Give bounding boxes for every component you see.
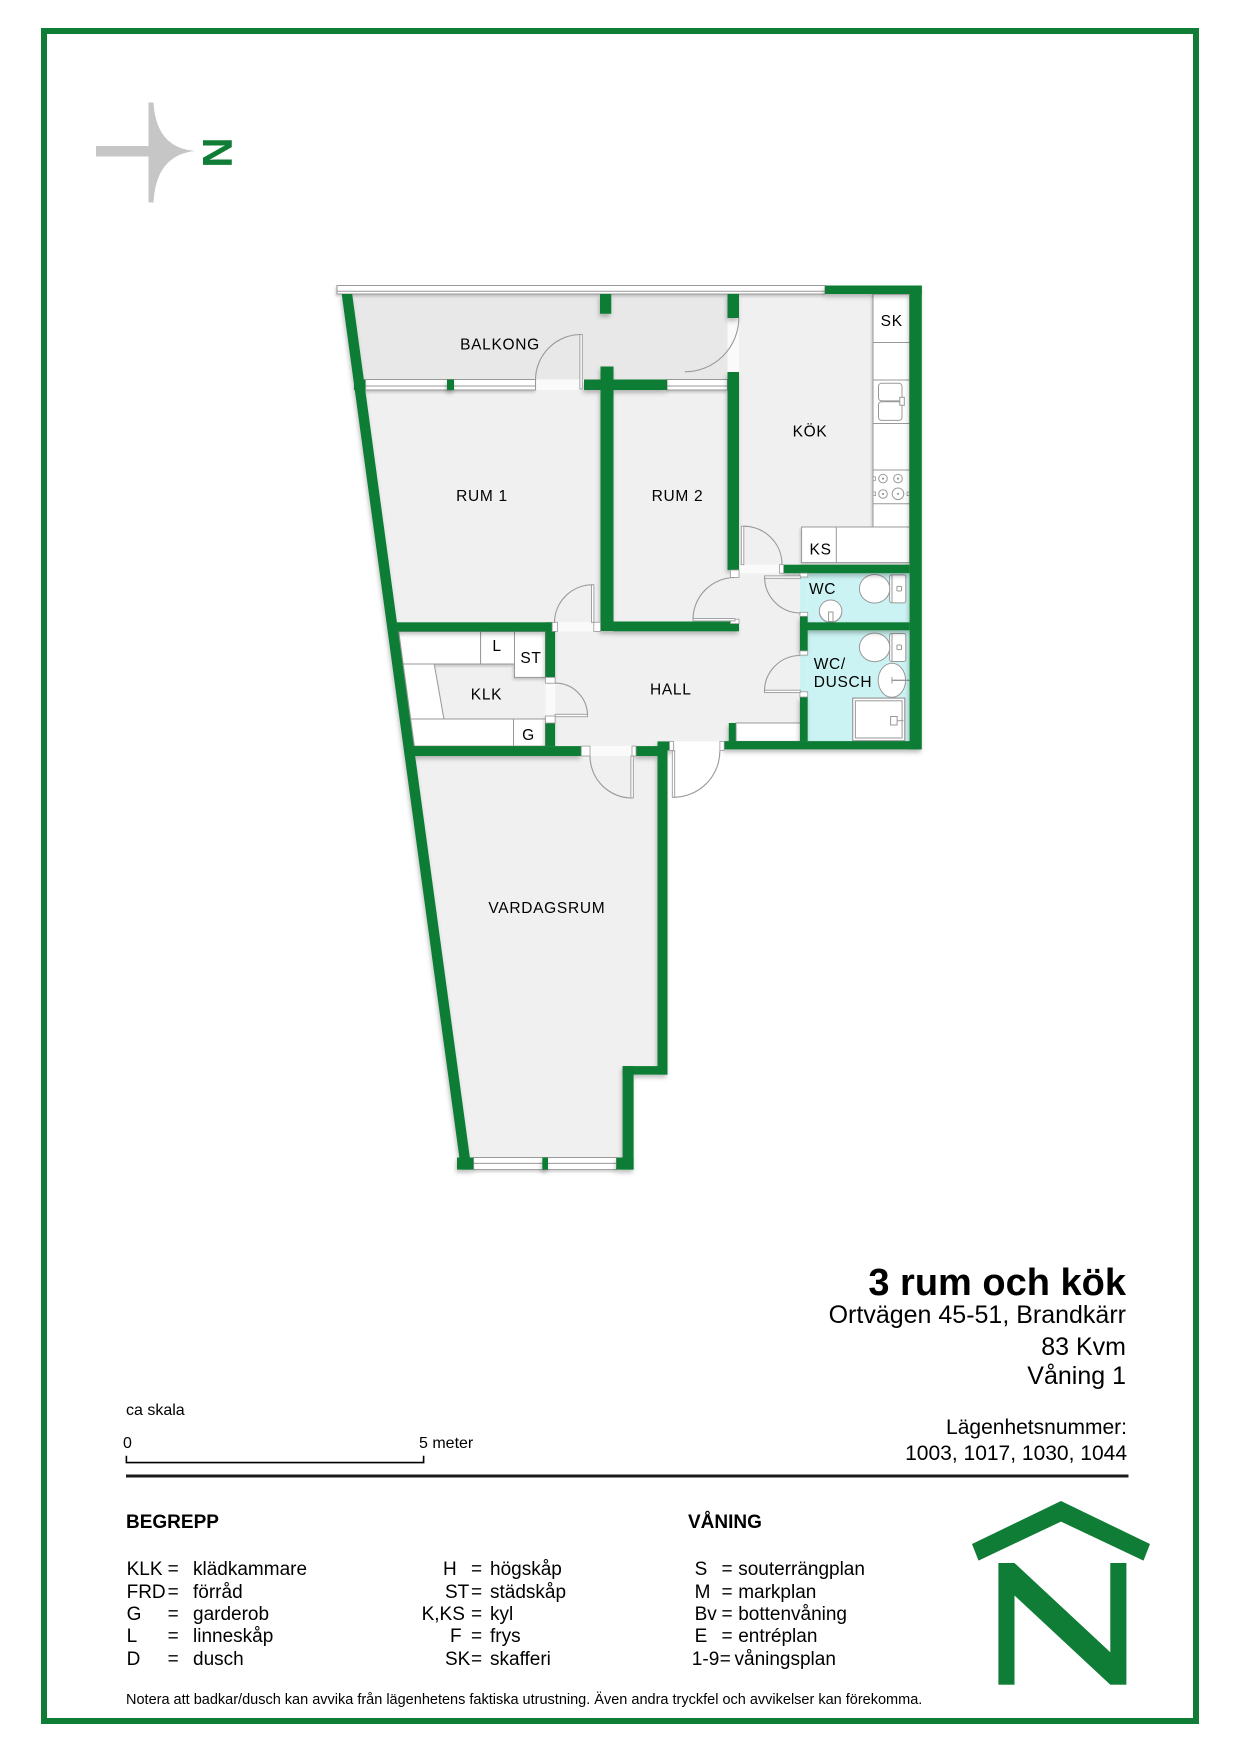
svg-text:KÖK: KÖK xyxy=(793,422,828,440)
svg-text:L: L xyxy=(492,638,501,655)
svg-text:WC: WC xyxy=(809,581,836,598)
svg-text:DUSCH: DUSCH xyxy=(814,674,873,691)
svg-text:SK: SK xyxy=(881,313,903,330)
svg-text:WC/: WC/ xyxy=(814,656,846,673)
svg-text:KS: KS xyxy=(810,541,832,558)
svg-text:VARDAGSRUM: VARDAGSRUM xyxy=(488,900,605,917)
svg-text:N: N xyxy=(194,137,241,167)
svg-text:HALL: HALL xyxy=(650,682,692,699)
svg-text:RUM 1: RUM 1 xyxy=(456,488,508,505)
svg-text:RUM 2: RUM 2 xyxy=(652,488,704,505)
svg-text:G: G xyxy=(522,727,535,744)
svg-text:ST: ST xyxy=(520,650,541,667)
svg-text:KLK: KLK xyxy=(471,686,502,703)
svg-text:BALKONG: BALKONG xyxy=(460,337,540,354)
